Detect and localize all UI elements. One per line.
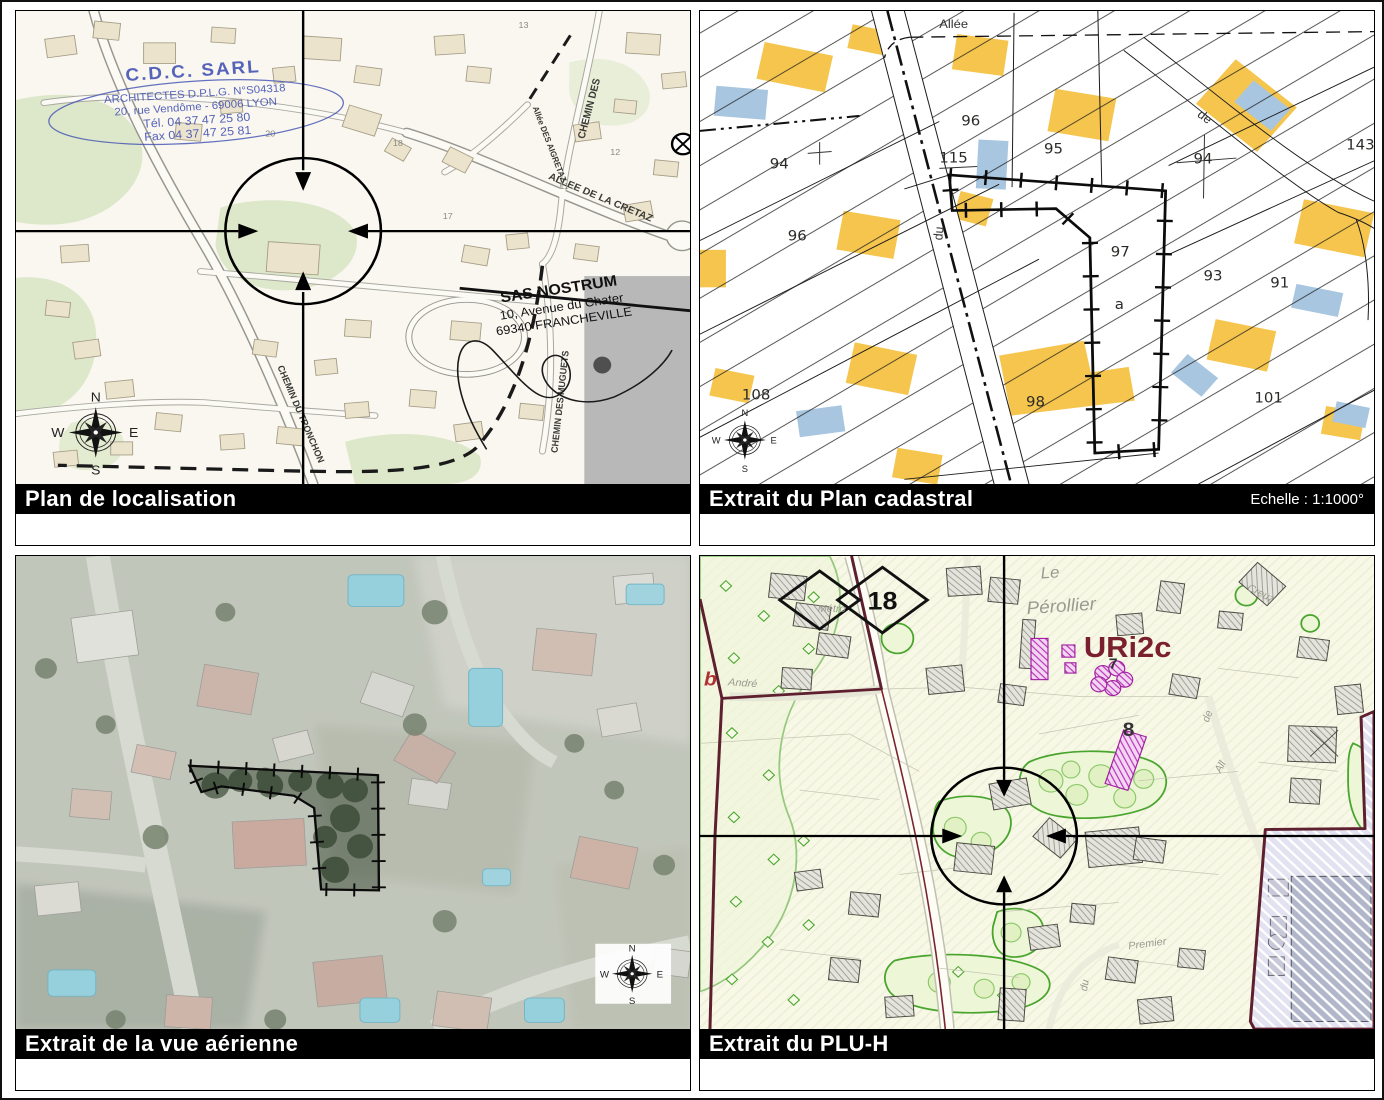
panel-title-aerienne: Extrait de la vue aérienne: [16, 1031, 298, 1057]
street-andre: André: [727, 676, 758, 690]
parcel-97: 97: [1111, 245, 1130, 260]
localisation-map: ALLEE DE LA CRETAZ CHEMIN DES Allée DES …: [16, 11, 690, 484]
compass-s: S: [91, 463, 100, 478]
parcel-93: 93: [1204, 269, 1223, 284]
num-7: 7: [1109, 656, 1118, 672]
aerial-photo: N E S W: [16, 556, 690, 1029]
parcel-96-mid: 96: [788, 229, 807, 244]
house-number: 11: [559, 181, 568, 191]
compass-n: N: [91, 390, 101, 405]
house-number: 13: [519, 20, 529, 30]
parcel-96-top: 96: [961, 114, 980, 129]
compass-w: W: [600, 969, 609, 980]
panel-label-bar: Extrait du Plan cadastral Echelle : 1:10…: [700, 484, 1374, 514]
panel-aerienne: N E S W Extrait de la vue aérienne: [15, 555, 691, 1091]
zone-hatching: [700, 11, 1374, 484]
house-number: 17: [443, 211, 453, 221]
zone-code-label: URi2c: [1084, 632, 1172, 664]
street-metro: Métro: [818, 603, 846, 615]
house-number: 18: [393, 138, 403, 148]
num-8: 8: [1123, 719, 1135, 740]
compass-s: S: [629, 995, 635, 1006]
compass-card: N E S W: [595, 943, 671, 1006]
compass-e: E: [129, 426, 138, 441]
street-du: du: [931, 226, 947, 241]
map-scale: Echelle : 1:1000°: [1250, 491, 1374, 508]
letter-b: b: [704, 669, 717, 690]
pluh-map: 18 URi2c Le Pérollier b 7 8 André Métro …: [700, 556, 1374, 1029]
map-dot: [593, 357, 611, 374]
panel-label-bar: Extrait de la vue aérienne: [16, 1029, 690, 1059]
sign-18-label: 18: [867, 586, 897, 615]
panel-cadastral: 94 96 115 95 94 143 96 97 a 93 91 108 98…: [699, 10, 1375, 546]
planning-document-sheet: ALLEE DE LA CRETAZ CHEMIN DES Allée DES …: [0, 0, 1384, 1100]
compass-w: W: [712, 436, 721, 446]
parcel-95: 95: [1044, 142, 1063, 157]
parcel-94-left: 94: [770, 157, 789, 172]
panel-title-localisation: Plan de localisation: [16, 486, 236, 512]
compass-e: E: [657, 969, 663, 980]
parcel-108: 108: [742, 388, 771, 403]
parcel-101: 101: [1254, 391, 1283, 406]
panel-label-bar: Plan de localisation: [16, 484, 690, 514]
panel-pluh: 18 URi2c Le Pérollier b 7 8 André Métro …: [699, 555, 1375, 1091]
parcel-115: 115: [939, 151, 968, 166]
house-number: 12: [610, 147, 620, 157]
no-entry-icon: [672, 134, 690, 155]
compass-n: N: [741, 408, 748, 418]
compass-n: N: [629, 943, 636, 954]
panel-title-cadastral: Extrait du Plan cadastral: [700, 486, 973, 512]
compass-e: E: [771, 436, 777, 446]
parcel-94-right: 94: [1194, 152, 1213, 167]
place-le: Le: [1040, 564, 1060, 583]
street-allee: Allée: [939, 17, 968, 31]
panel-label-bar: Extrait du PLU-H: [700, 1029, 1374, 1059]
street-du: du: [1078, 979, 1092, 992]
parcel-91: 91: [1270, 276, 1289, 291]
parcel-98: 98: [1026, 395, 1045, 410]
parcel-97a: a: [1115, 297, 1124, 312]
panel-localisation: ALLEE DE LA CRETAZ CHEMIN DES Allée DES …: [15, 10, 691, 546]
compass-s: S: [742, 464, 748, 474]
cadastral-map: 94 96 115 95 94 143 96 97 a 93 91 108 98…: [700, 11, 1374, 484]
parcel-143: 143: [1346, 138, 1374, 153]
panel-title-pluh: Extrait du PLU-H: [700, 1031, 889, 1057]
compass-w: W: [51, 426, 64, 441]
